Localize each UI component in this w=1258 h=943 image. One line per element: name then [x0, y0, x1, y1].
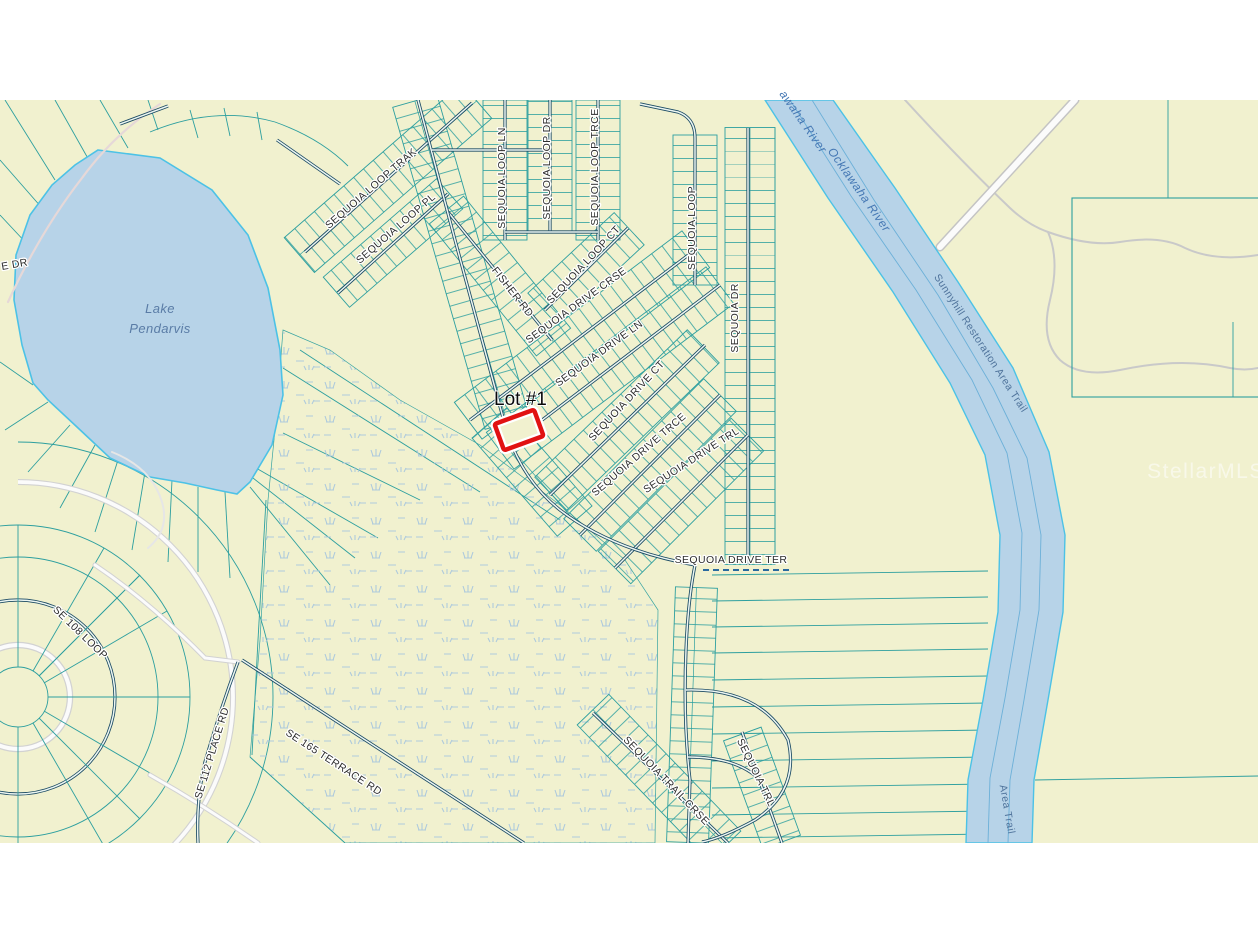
label-sequoia-drive-ter: SEQUOIA DRIVE TER [675, 554, 788, 566]
label-watermark: StellarMLS [1147, 460, 1258, 483]
parcel-map: E DRLakePendarvisSEQUOIA LOOP TRAKSEQUOI… [0, 0, 1258, 943]
label-sequoia-dr: SEQUOIA DR [729, 283, 741, 352]
label-sequoia-loop: SEQUOIA LOOP [686, 186, 698, 270]
label-lake-pendarvis-line2: Pendarvis [129, 321, 191, 336]
map-layers [0, 84, 1258, 943]
label-lot-1: Lot #1 [494, 389, 547, 410]
label-sequoia-loop-trce: SEQUOIA LOOP TRCE [589, 108, 601, 225]
label-sequoia-loop-ln: SEQUOIA LOOP LN [496, 127, 508, 229]
label-lake-pendarvis-line1: Lake [145, 301, 175, 316]
label-sequoia-loop-dr: SEQUOIA LOOP DR [541, 116, 553, 219]
parcel-map-screenshot: E DRLakePendarvisSEQUOIA LOOP TRAKSEQUOI… [0, 0, 1258, 943]
